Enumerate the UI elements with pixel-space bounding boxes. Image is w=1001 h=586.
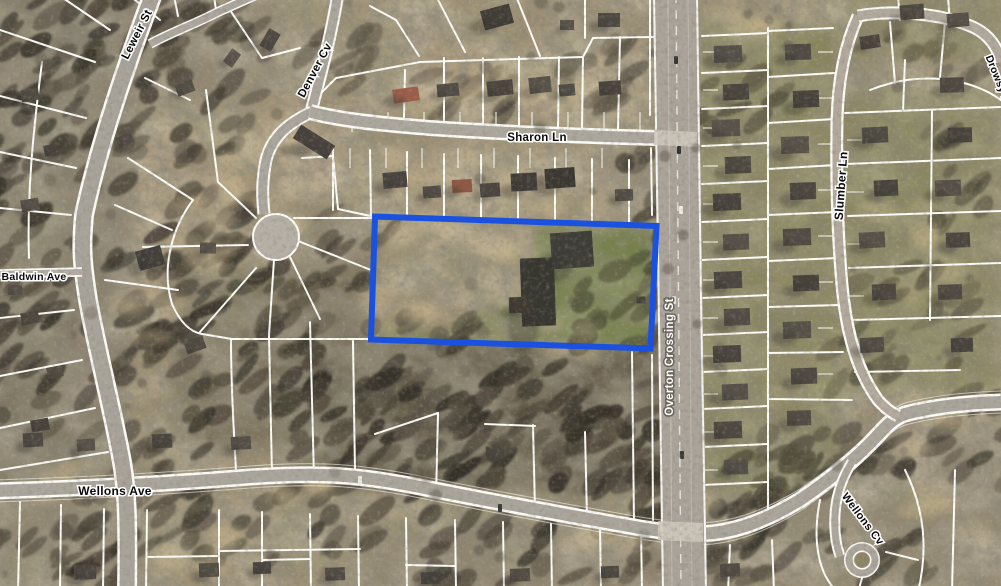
svg-text:Baldwin Ave: Baldwin Ave: [2, 271, 67, 283]
svg-text:Wellons Ave: Wellons Ave: [78, 484, 152, 498]
svg-text:Overton Crossing St: Overton Crossing St: [664, 298, 676, 416]
svg-text:Sharon Ln: Sharon Ln: [507, 132, 567, 144]
